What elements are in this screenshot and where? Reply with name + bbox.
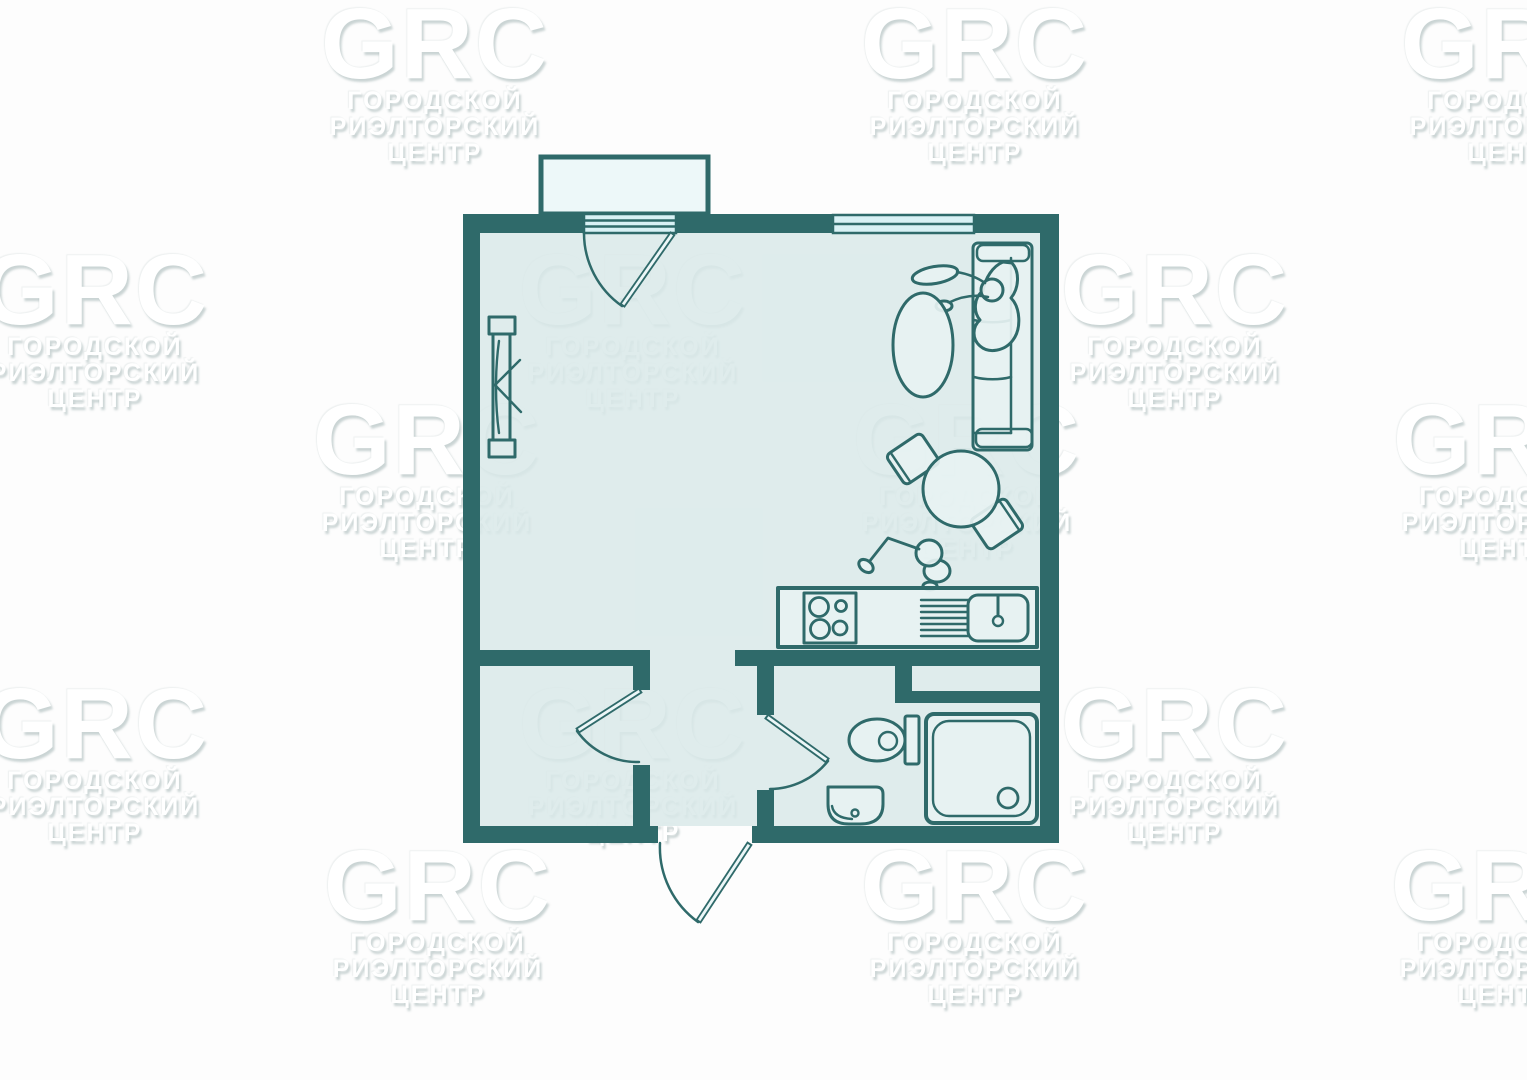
shower-tray: [926, 714, 1037, 823]
balcony: [541, 157, 708, 214]
partition-main-left: [480, 650, 650, 666]
balcony-door-sill: [584, 214, 676, 233]
window: [833, 215, 974, 233]
wall-bottom-left: [463, 826, 658, 843]
wall-right: [1040, 233, 1059, 843]
duct-wall-horizontal: [895, 691, 1040, 703]
bathroom-wall-upper: [757, 666, 774, 715]
oval-coffee-table: [893, 293, 953, 397]
wall-bottom-right: [752, 826, 1059, 843]
bathroom-wall-lower: [757, 790, 774, 826]
person-head: [916, 540, 942, 566]
toilet: [849, 716, 919, 764]
closet-wall-lower: [633, 765, 650, 826]
kitchen-counter: [778, 588, 1037, 647]
entrance-door: [660, 843, 750, 922]
floorplan-canvas: GRC ГОРОДСКОЙ РИЭЛТОРСКИЙ ЦЕНТР GRC ГОРО…: [0, 0, 1527, 1080]
drainboard: [921, 600, 968, 636]
round-dining-table: [923, 451, 999, 527]
floor-plan: [0, 0, 1527, 1080]
washbasin: [828, 787, 883, 824]
partition-main-right: [735, 650, 1040, 666]
kitchen-sink: [968, 595, 1028, 641]
closet-door-jamb: [633, 666, 650, 690]
door-swing-arc: [660, 843, 698, 922]
wall-left: [463, 233, 480, 843]
